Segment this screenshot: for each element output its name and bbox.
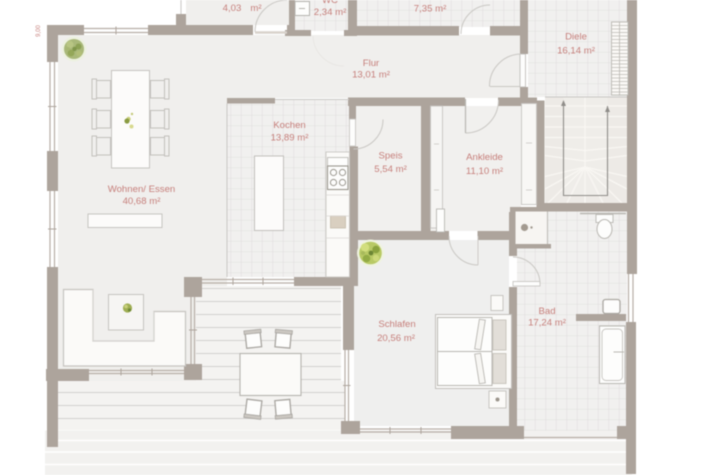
svg-text:Wohnen/ Essen: Wohnen/ Essen <box>108 184 176 195</box>
svg-text:13,89 m²: 13,89 m² <box>271 133 310 144</box>
svg-text:17,24 m²: 17,24 m² <box>528 318 567 329</box>
svg-text:Flur: Flur <box>363 58 380 69</box>
svg-text:20,56 m²: 20,56 m² <box>377 333 416 344</box>
svg-text:Ankleide: Ankleide <box>466 152 503 163</box>
svg-text:Schlafen: Schlafen <box>378 319 415 330</box>
svg-text:16,14 m²: 16,14 m² <box>557 46 596 57</box>
svg-text:Speis: Speis <box>379 151 403 162</box>
svg-text:5,54 m²: 5,54 m² <box>374 164 407 175</box>
svg-text:7,35 m²: 7,35 m² <box>414 4 447 15</box>
svg-text:40,68 m²: 40,68 m² <box>123 196 162 207</box>
svg-text:2,34 m²: 2,34 m² <box>314 7 347 18</box>
svg-text:13,01 m²: 13,01 m² <box>352 70 391 81</box>
svg-text:9,00: 9,00 <box>36 25 42 37</box>
svg-text:11,10 m²: 11,10 m² <box>466 166 504 177</box>
svg-text:m²: m² <box>250 3 262 14</box>
svg-text:Kochen: Kochen <box>273 120 306 131</box>
svg-text:4,03: 4,03 <box>223 3 242 14</box>
svg-text:Diele: Diele <box>565 32 587 43</box>
svg-text:WC: WC <box>322 0 338 6</box>
svg-text:Bad: Bad <box>538 306 555 317</box>
